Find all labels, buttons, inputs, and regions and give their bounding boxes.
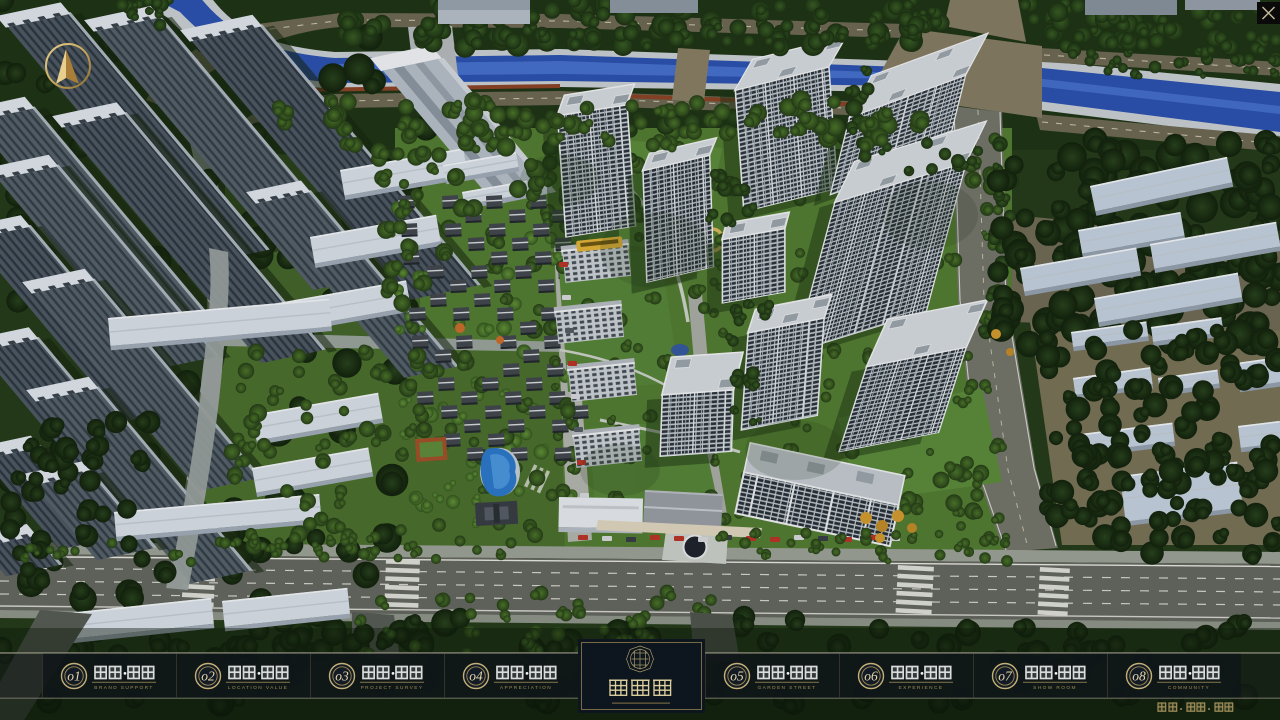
svg-text:BRAND SUPPORT: BRAND SUPPORT — [94, 685, 153, 691]
svg-text:o5: o5 — [730, 669, 744, 684]
svg-text:EXPERIENCE: EXPERIENCE — [899, 685, 944, 691]
svg-text:o1: o1 — [67, 669, 81, 684]
svg-text:GARDEN STREET: GARDEN STREET — [758, 685, 817, 691]
svg-text:o7: o7 — [998, 669, 1013, 684]
svg-text:o4: o4 — [469, 669, 483, 684]
svg-text:o6: o6 — [864, 669, 878, 684]
svg-text:LOCATION VALUE: LOCATION VALUE — [228, 685, 288, 691]
svg-text:o8: o8 — [1132, 669, 1146, 684]
svg-text:PROJECT SURVEY: PROJECT SURVEY — [361, 685, 424, 691]
svg-text:APPRECIATION: APPRECIATION — [500, 685, 552, 691]
svg-text:o3: o3 — [335, 669, 349, 684]
svg-text:o2: o2 — [201, 669, 215, 684]
svg-text:SHOW ROOM: SHOW ROOM — [1033, 685, 1077, 691]
svg-text:COMMUNITY: COMMUNITY — [1168, 685, 1210, 691]
